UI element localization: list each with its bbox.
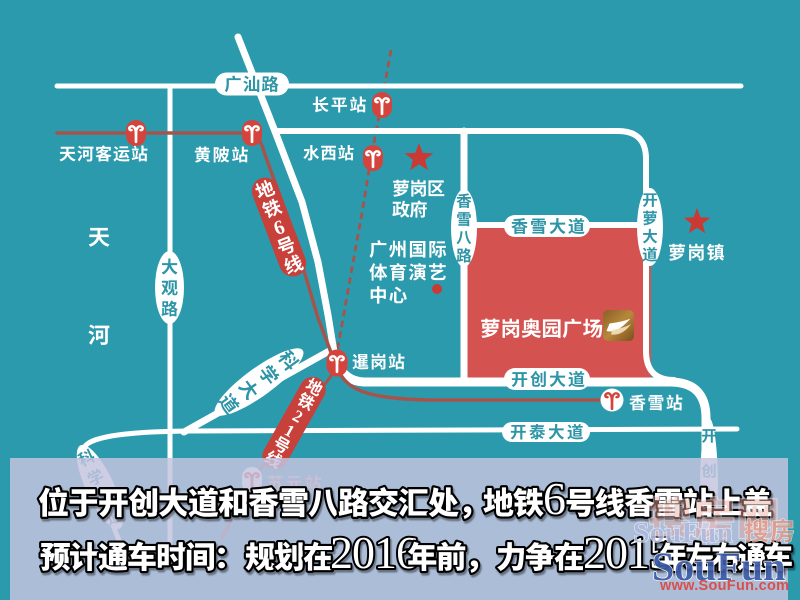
svg-text:www.SouFun.com: www.SouFun.com — [659, 578, 789, 594]
svg-text:6: 6 — [543, 473, 566, 524]
svg-text:2016: 2016 — [330, 527, 418, 578]
